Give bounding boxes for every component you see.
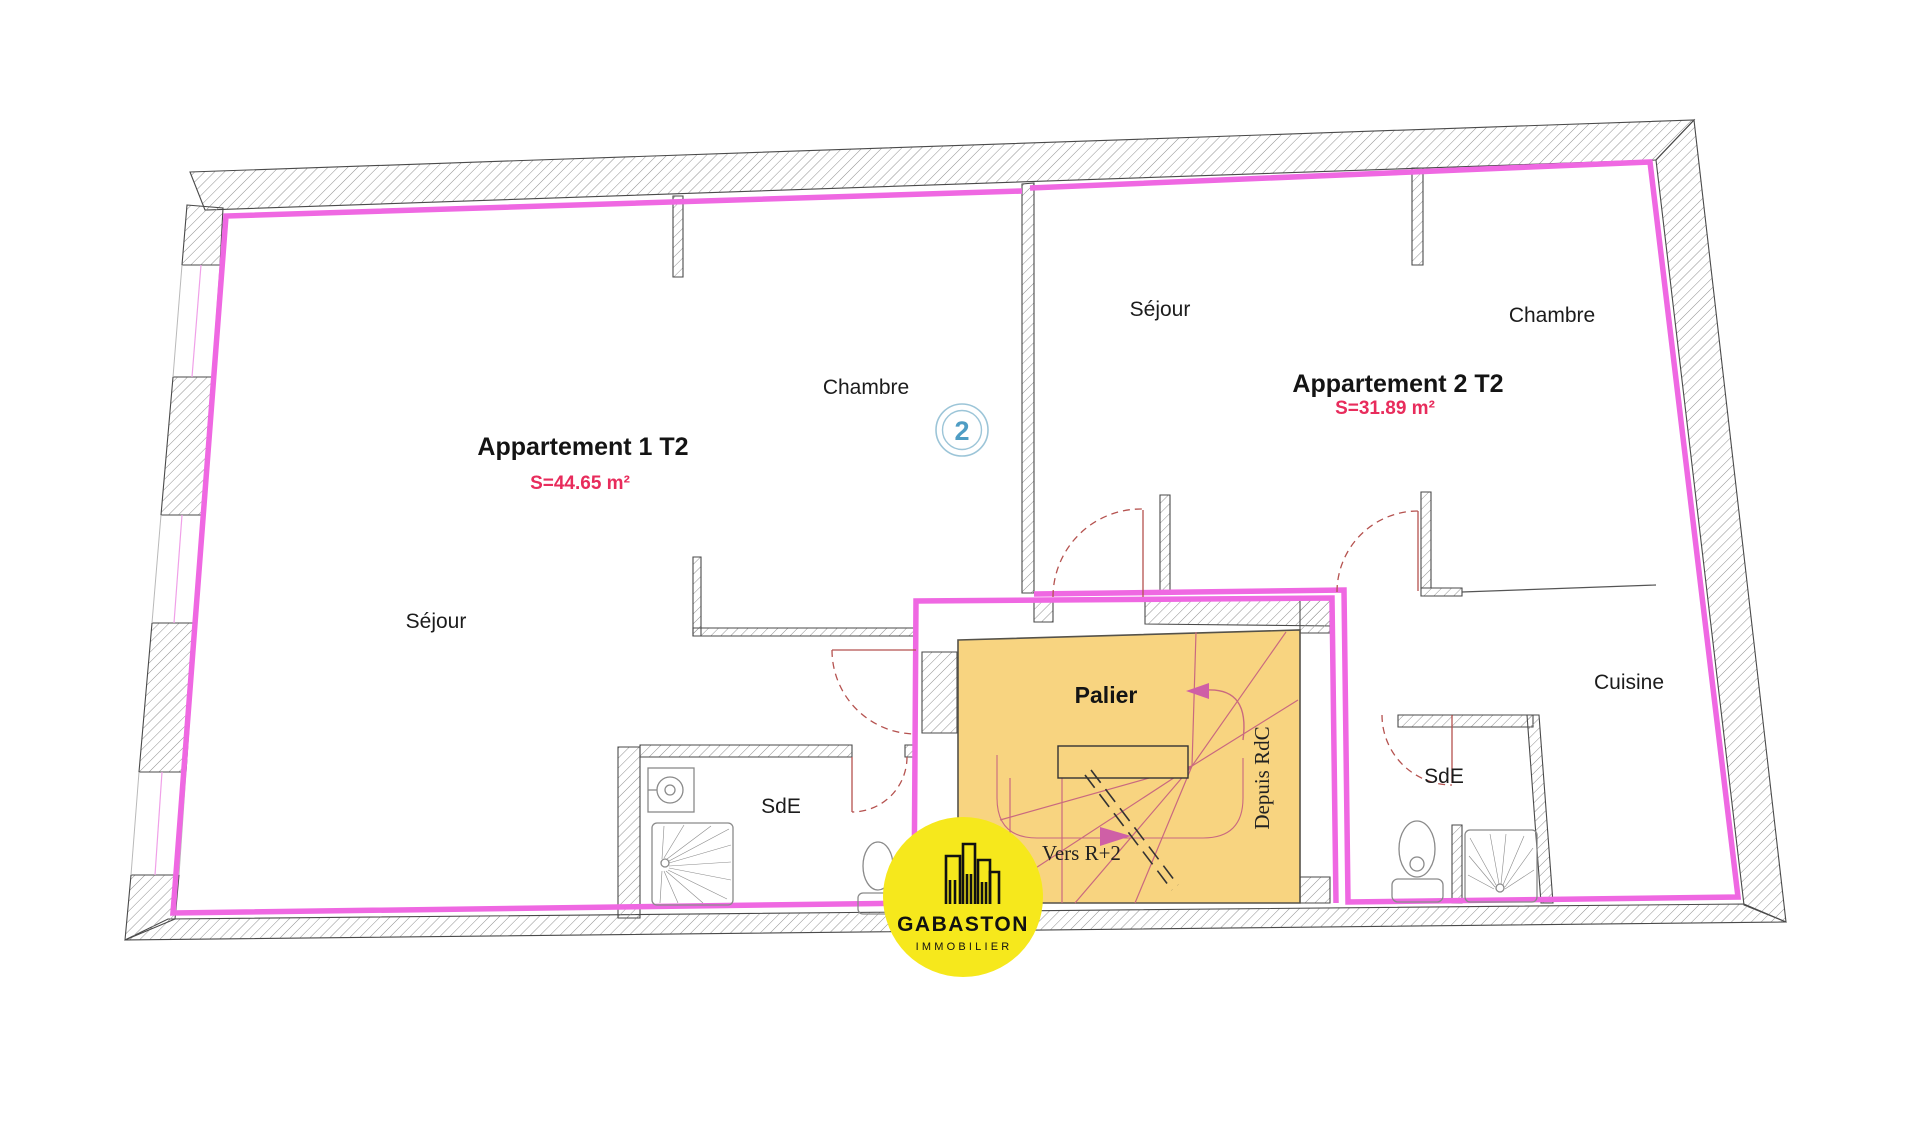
wall-cuisine-vertical xyxy=(1421,492,1431,588)
wall-cuisine-foot xyxy=(1421,588,1462,596)
wall-sde1-top xyxy=(640,745,852,757)
apt1-sde-label: SdE xyxy=(761,795,801,818)
stair-landing xyxy=(1058,746,1188,778)
floor-plan-page: Appartement 1 T2 S=44.65 m² Séjour Chamb… xyxy=(0,0,1920,1139)
vers-r2-label: Vers R+2 xyxy=(1042,841,1121,865)
wall-stair-top-west xyxy=(1034,600,1053,622)
floor-marker-badge: 2 xyxy=(936,404,988,456)
apt2-name-label: Appartement 2 T2 xyxy=(1292,370,1503,398)
wall-strip2-top xyxy=(1300,600,1330,633)
wall-sde2-top xyxy=(1398,715,1533,727)
apt1-area-label: S=44.65 m² xyxy=(530,473,630,494)
wall-chambre1-horizontal xyxy=(693,628,915,636)
logo-title: GABASTON xyxy=(897,913,1029,936)
wall-sde2-slanted xyxy=(1527,715,1553,903)
door-sde1 xyxy=(852,757,907,812)
wall-top xyxy=(190,120,1694,210)
sink-icon xyxy=(648,768,694,812)
logo-subtitle: IMMOBILIER xyxy=(916,941,1013,953)
wall-divider-apartments xyxy=(1022,183,1034,593)
wall-sde2-stub xyxy=(1452,825,1462,903)
wall-left-corner xyxy=(182,205,223,265)
walls xyxy=(125,120,1786,940)
wall-strip2-bottom xyxy=(1300,877,1330,903)
toilet-icon-apt2 xyxy=(1392,821,1443,902)
wall-right xyxy=(1656,120,1786,922)
windows xyxy=(131,265,220,875)
wall-sde1-left xyxy=(618,747,640,918)
door-apt2-interior xyxy=(1337,511,1418,592)
apt2-sejour-label: Séjour xyxy=(1130,298,1191,321)
floor-plan: Appartement 1 T2 S=44.65 m² Séjour Chamb… xyxy=(0,0,1920,1139)
apt1-name-label: Appartement 1 T2 xyxy=(477,433,688,461)
apt2-area-label: S=31.89 m² xyxy=(1335,398,1435,419)
door-apt1-entry xyxy=(832,650,916,734)
agency-logo: GABASTON IMMOBILIER xyxy=(883,817,1043,977)
shower-icon-apt1 xyxy=(652,823,733,905)
boundaries xyxy=(173,162,1738,913)
apt1-sejour-label: Séjour xyxy=(406,610,467,633)
apt2-chambre-label: Chambre xyxy=(1509,304,1595,327)
apt2-cuisine-label: Cuisine xyxy=(1594,671,1664,694)
wall-stub-apt2 xyxy=(1412,168,1423,265)
floor-marker-number: 2 xyxy=(954,416,969,446)
depuis-rdc-label: Depuis RdC xyxy=(1250,726,1274,829)
palier-label: Palier xyxy=(1075,682,1138,708)
wall-chambre1-vertical xyxy=(693,557,701,636)
apt2-sde-label: SdE xyxy=(1424,765,1464,788)
wall-stub-apt1 xyxy=(673,196,683,277)
apt1-chambre-label: Chambre xyxy=(823,376,909,399)
shower-icon-apt2 xyxy=(1465,830,1537,902)
door-apt2-entry xyxy=(1053,509,1143,597)
wall-corridor-strip xyxy=(922,652,957,733)
cuisine-separation-line xyxy=(1462,585,1656,592)
wall-hall-apt2 xyxy=(1160,495,1170,593)
